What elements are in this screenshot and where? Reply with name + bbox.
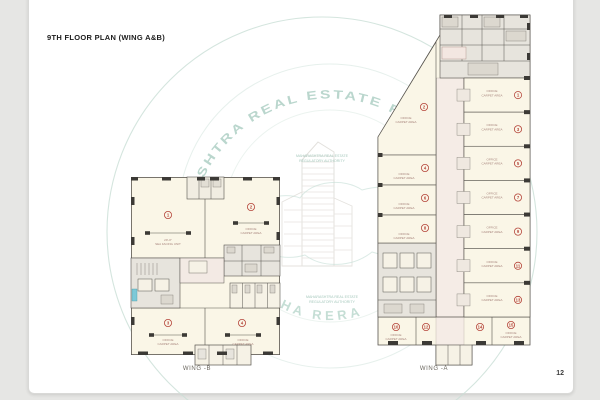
page-title: 9TH FLOOR PLAN (WING A&B) xyxy=(47,33,165,42)
unit-label: CARPET AREA xyxy=(386,337,407,341)
unit-number: 10 xyxy=(394,325,399,330)
watermark-caption-bottom: MAHARASHTRA REAL ESTATE xyxy=(306,295,359,299)
unit-label: CARPET AREA xyxy=(482,127,503,131)
unit-label: CARPET AREA xyxy=(396,120,417,124)
unit-number: 13 xyxy=(516,298,521,303)
unit-label: CARPET AREA xyxy=(394,236,415,240)
unit-label: CARPET AREA xyxy=(482,230,503,234)
unit-label: CARPET AREA xyxy=(233,342,254,346)
watermark-caption-top: MAHARASHTRA REAL ESTATE xyxy=(296,154,349,158)
wing-a-bottom-protrusion xyxy=(436,345,472,365)
unit-label: CARPET AREA xyxy=(394,206,415,210)
wing-b-water-feature xyxy=(132,289,137,301)
wing-a-lift-core xyxy=(378,243,436,317)
unit-label: SEA FACING UNIT xyxy=(155,242,181,246)
unit-number: 11 xyxy=(516,263,521,268)
document-page-viewport: MAHARASHTRA REAL ESTATE REGULATORY AUTHO… xyxy=(0,0,600,400)
watermark-caption-top2: REGULATORY AUTHORITY xyxy=(299,159,345,163)
unit-label: CARPET AREA xyxy=(482,93,503,97)
unit-number: 14 xyxy=(478,325,483,330)
wing-b-stair-lift-core xyxy=(131,258,180,308)
wing-b-label: WING -B xyxy=(131,366,263,372)
unit-label: CARPET AREA xyxy=(482,298,503,302)
wing-b-lobby xyxy=(180,258,224,283)
wing-a-floorplan: 2OFFICECARPET AREA4OFFICECARPET AREA6OFF… xyxy=(378,15,530,365)
unit-number: 12 xyxy=(424,325,429,330)
wing-b-service-core-right xyxy=(224,245,280,276)
building-floor-lines xyxy=(284,156,352,258)
unit-label: CARPET AREA xyxy=(158,342,179,346)
wing-a-top-service-core xyxy=(440,15,530,78)
unit-label: CARPET AREA xyxy=(501,335,522,339)
unit-label: CARPET AREA xyxy=(394,176,415,180)
wing-b-toilet-row xyxy=(230,283,280,308)
unit-label: CARPET AREA xyxy=(241,231,262,235)
unit-label: CARPET AREA xyxy=(482,196,503,200)
unit-label: CARPET AREA xyxy=(482,264,503,268)
wing-a-label: WING -A xyxy=(378,366,490,372)
unit-label: CARPET AREA xyxy=(482,162,503,166)
page-number: 12 xyxy=(540,370,564,377)
unit-number: 15 xyxy=(509,323,514,328)
watermark-caption-bottom2: REGULATORY AUTHORITY xyxy=(309,300,355,304)
wing-b-floorplan: 129'-0"SEA FACING UNIT2OFFICECARPET AREA… xyxy=(131,177,280,365)
